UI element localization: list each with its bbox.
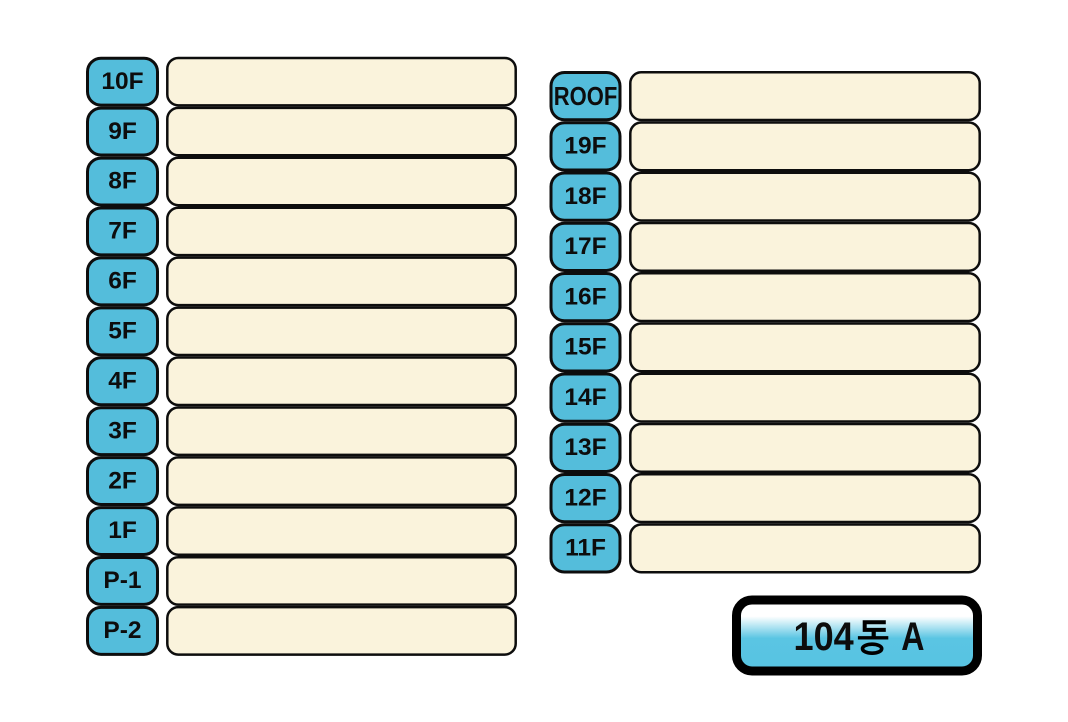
svg-text:104: 104 xyxy=(794,615,855,659)
svg-text:15F: 15F xyxy=(564,334,606,361)
svg-text:4F: 4F xyxy=(108,367,137,394)
svg-text:5F: 5F xyxy=(108,318,137,345)
svg-text:2F: 2F xyxy=(108,467,137,494)
svg-text:3F: 3F xyxy=(108,417,137,444)
svg-text:7F: 7F xyxy=(108,218,137,245)
svg-text:16F: 16F xyxy=(564,283,606,310)
svg-text:12F: 12F xyxy=(564,484,606,511)
svg-text:P-1: P-1 xyxy=(103,567,141,594)
svg-text:P-2: P-2 xyxy=(103,617,141,644)
svg-text:19F: 19F xyxy=(564,133,606,160)
svg-text:13F: 13F xyxy=(564,434,606,461)
svg-text:10F: 10F xyxy=(101,68,143,95)
svg-text:ROOF: ROOF xyxy=(554,81,618,111)
svg-text:18F: 18F xyxy=(564,183,606,210)
svg-text:A: A xyxy=(901,615,924,659)
svg-text:1F: 1F xyxy=(108,517,137,544)
svg-text:17F: 17F xyxy=(564,233,606,260)
svg-text:9F: 9F xyxy=(108,118,137,145)
svg-text:14F: 14F xyxy=(564,384,606,411)
svg-text:8F: 8F xyxy=(108,168,137,195)
svg-text:6F: 6F xyxy=(108,268,137,295)
svg-text:11F: 11F xyxy=(565,535,606,562)
